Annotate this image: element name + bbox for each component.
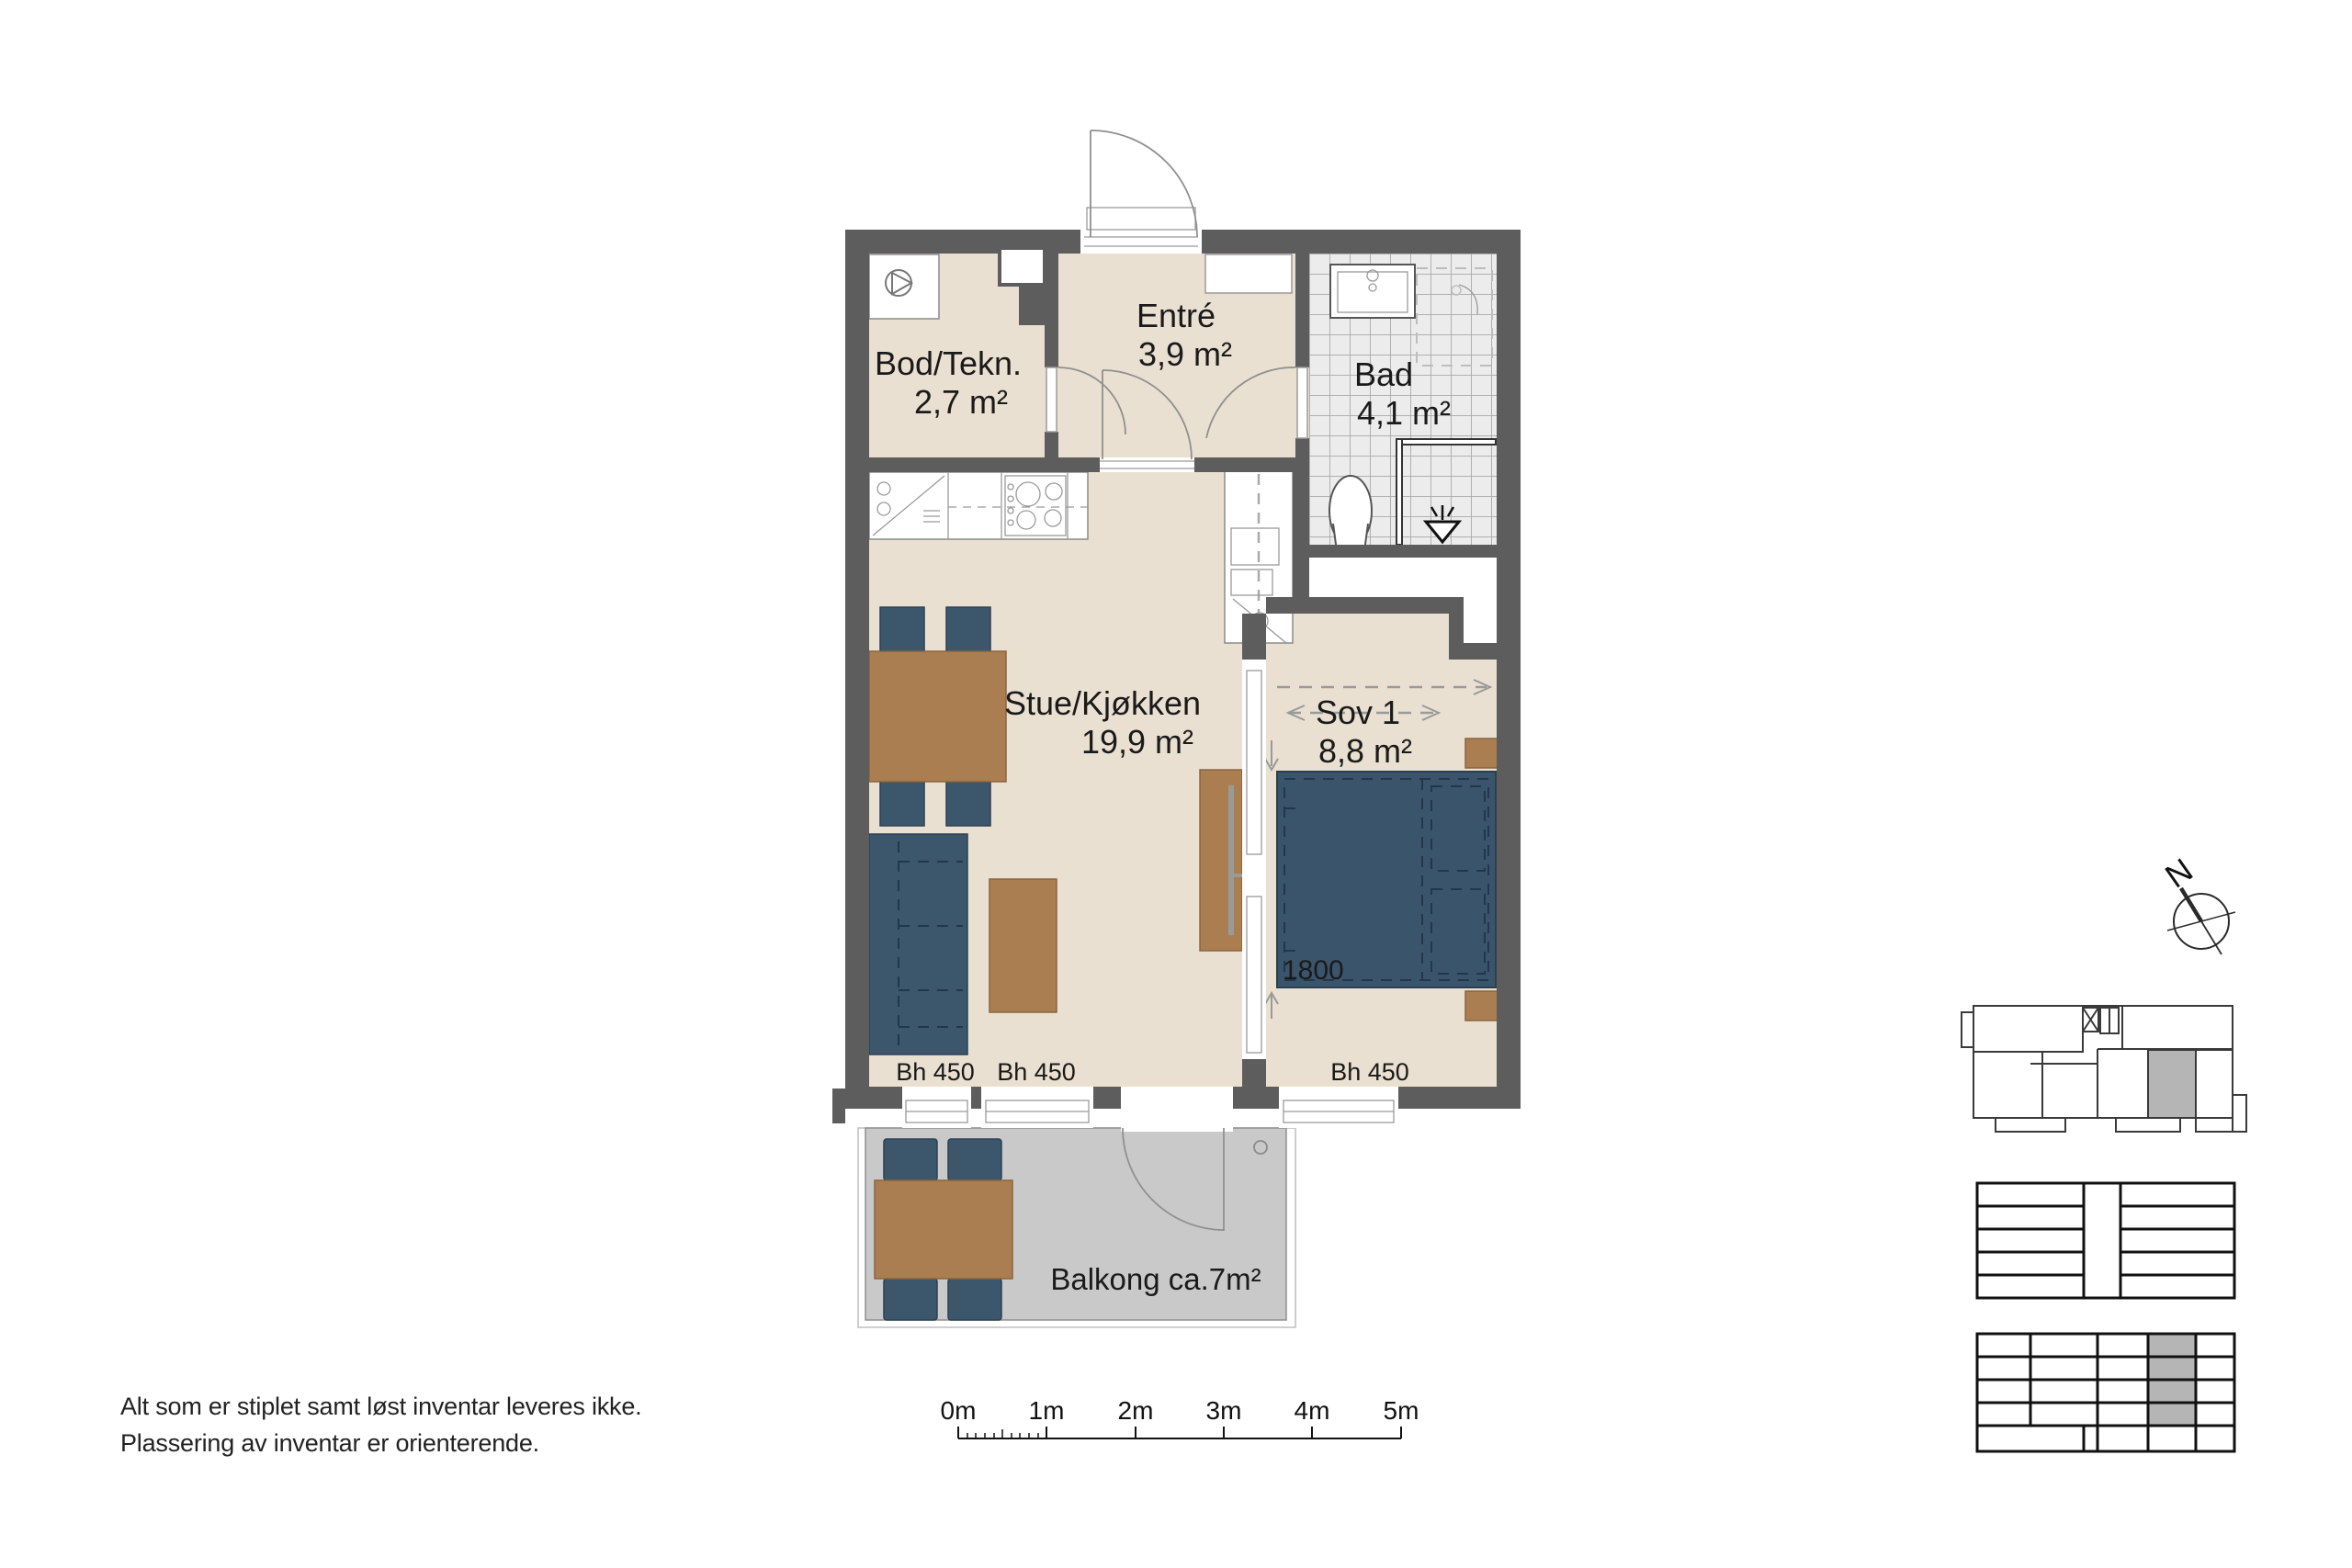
kitchen-counter xyxy=(869,472,1088,539)
toilet-icon xyxy=(1329,476,1372,551)
floor-plan-sheet: Bod/Tekn. 2,7 m² Entré 3,9 m² Bad 4,1 m²… xyxy=(0,0,2352,1568)
scale-tick-label: 5m xyxy=(1384,1396,1419,1425)
duct-shaft xyxy=(1000,248,1045,285)
room-label-sov: Sov 1 xyxy=(1316,694,1400,731)
bathroom-sink-icon xyxy=(1330,265,1415,318)
window xyxy=(1279,1091,1398,1128)
entry-closet xyxy=(1205,254,1292,293)
window xyxy=(981,1091,1093,1128)
bedside-table xyxy=(1465,739,1498,768)
room-area-bod: 2,7 m² xyxy=(914,383,1008,421)
glazed-partition xyxy=(1242,660,1266,1059)
scale-tick-label: 2m xyxy=(1118,1396,1154,1425)
room-label-stue: Stue/Kjøkken xyxy=(1004,684,1201,722)
key-plan-highlight xyxy=(2148,1050,2196,1118)
room-label-bod: Bod/Tekn. xyxy=(875,344,1022,382)
sofa xyxy=(869,834,967,1055)
bed-width-dimension: 1800 xyxy=(1283,955,1344,986)
coffee-table xyxy=(989,879,1057,1012)
bh-label: Bh 450 xyxy=(1330,1058,1409,1086)
room-area-entre: 3,9 m² xyxy=(1138,335,1232,373)
ventilation-unit-icon xyxy=(869,254,939,319)
scale-tick-label: 3m xyxy=(1206,1396,1242,1425)
room-label-entre: Entré xyxy=(1136,297,1216,334)
note-line-1: Alt som er stiplet samt løst inventar le… xyxy=(120,1393,641,1420)
scale-tick-label: 4m xyxy=(1295,1396,1330,1425)
scale-tick-label: 1m xyxy=(1029,1396,1065,1425)
tv-bench xyxy=(1200,770,1242,951)
bedside-table xyxy=(1465,991,1498,1021)
tv-icon xyxy=(1228,785,1234,935)
room-area-bad: 4,1 m² xyxy=(1357,394,1451,432)
bh-label: Bh 450 xyxy=(997,1058,1076,1086)
room-label-bad: Bad xyxy=(1354,355,1413,393)
bh-label: Bh 450 xyxy=(896,1058,975,1086)
room-area-stue: 19,9 m² xyxy=(1081,723,1193,761)
balcony xyxy=(858,1128,1295,1327)
room-label-balkong: Balkong ca.7m² xyxy=(1050,1262,1261,1296)
key-plan xyxy=(1962,1006,2246,1132)
note-line-2: Plassering av inventar er orienterende. xyxy=(120,1429,539,1457)
scale-tick-label: 0m xyxy=(941,1396,977,1425)
window xyxy=(902,1091,971,1128)
room-area-sov: 8,8 m² xyxy=(1318,732,1412,770)
